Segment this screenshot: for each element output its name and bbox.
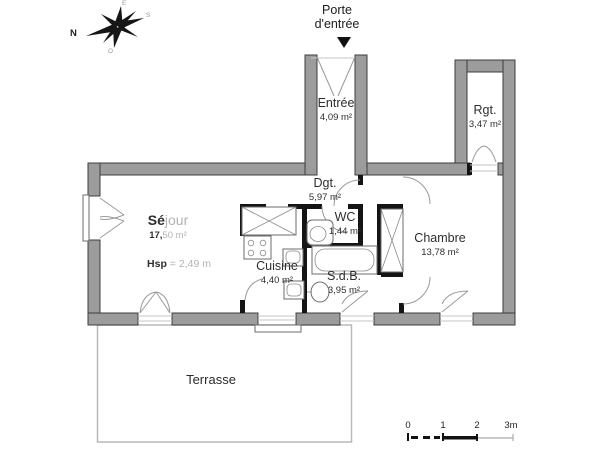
scale-tick-0: 0 xyxy=(405,420,410,431)
room-label-chambre: Chambre 13,78 m² xyxy=(414,231,465,258)
room-area: 3,95 m² xyxy=(327,285,361,296)
room-area: 3,47 m² xyxy=(469,119,501,130)
washbasin-icon xyxy=(307,282,329,302)
room-name: Cuisine xyxy=(256,259,298,274)
floor-plan: Porte d'entrée N E S O Entrée 4,09 m² Rg… xyxy=(0,0,600,450)
compass-letter-n: N xyxy=(70,28,77,39)
compass-letter-s: S xyxy=(146,12,150,19)
room-label-wc: WC 1,44 m² xyxy=(329,210,361,237)
scale-tick-3: 3m xyxy=(504,420,517,431)
kitchen-counter-icon xyxy=(242,207,296,235)
compass-letter-o: O xyxy=(108,48,113,55)
room-name: Dgt. xyxy=(309,176,341,191)
room-label-dgt: Dgt. 5,97 m² xyxy=(309,176,341,203)
room-name: WC xyxy=(329,210,361,225)
plan-drawing xyxy=(0,0,600,450)
room-label-sejour: Séjour 17,50 m² xyxy=(148,212,188,241)
room-label-sdb: S.d.B. 3,95 m² xyxy=(327,269,361,296)
room-label-entree: Entrée 4,09 m² xyxy=(318,96,355,123)
room-area: 4,40 m² xyxy=(256,275,298,286)
room-name: S.d.B. xyxy=(327,269,361,284)
room-area: 4,09 m² xyxy=(318,112,355,123)
room-name: Chambre xyxy=(414,231,465,246)
room-name: Rgt. xyxy=(469,103,501,118)
scale-bar xyxy=(407,433,513,441)
door-arcs xyxy=(100,57,496,313)
compass-rose-icon xyxy=(86,6,144,48)
entrance-label-line1: Porte xyxy=(315,3,360,17)
room-label-cuisine: Cuisine 4,40 m² xyxy=(256,259,298,286)
scale-tick-2: 2 xyxy=(474,420,479,431)
ceiling-height-note: Hsp = 2,49 m xyxy=(147,258,211,270)
entrance-label: Porte d'entrée xyxy=(315,3,360,32)
room-name: Séjour xyxy=(148,212,188,229)
room-name: Entrée xyxy=(318,96,355,111)
room-area: 17,50 m² xyxy=(148,230,188,241)
room-label-rgt: Rgt. 3,47 m² xyxy=(469,103,501,130)
room-label-terrasse: Terrasse xyxy=(186,372,236,387)
room-area: 1,44 m² xyxy=(329,226,361,237)
hob-icon xyxy=(244,236,271,259)
entrance-arrow-icon xyxy=(337,37,351,48)
room-area: 5,97 m² xyxy=(309,192,341,203)
compass-letter-e: E xyxy=(122,0,126,7)
scale-tick-1: 1 xyxy=(440,420,445,431)
wardrobe-icon xyxy=(381,209,403,272)
room-area: 13,78 m² xyxy=(414,247,465,258)
entrance-label-line2: d'entrée xyxy=(315,17,360,31)
